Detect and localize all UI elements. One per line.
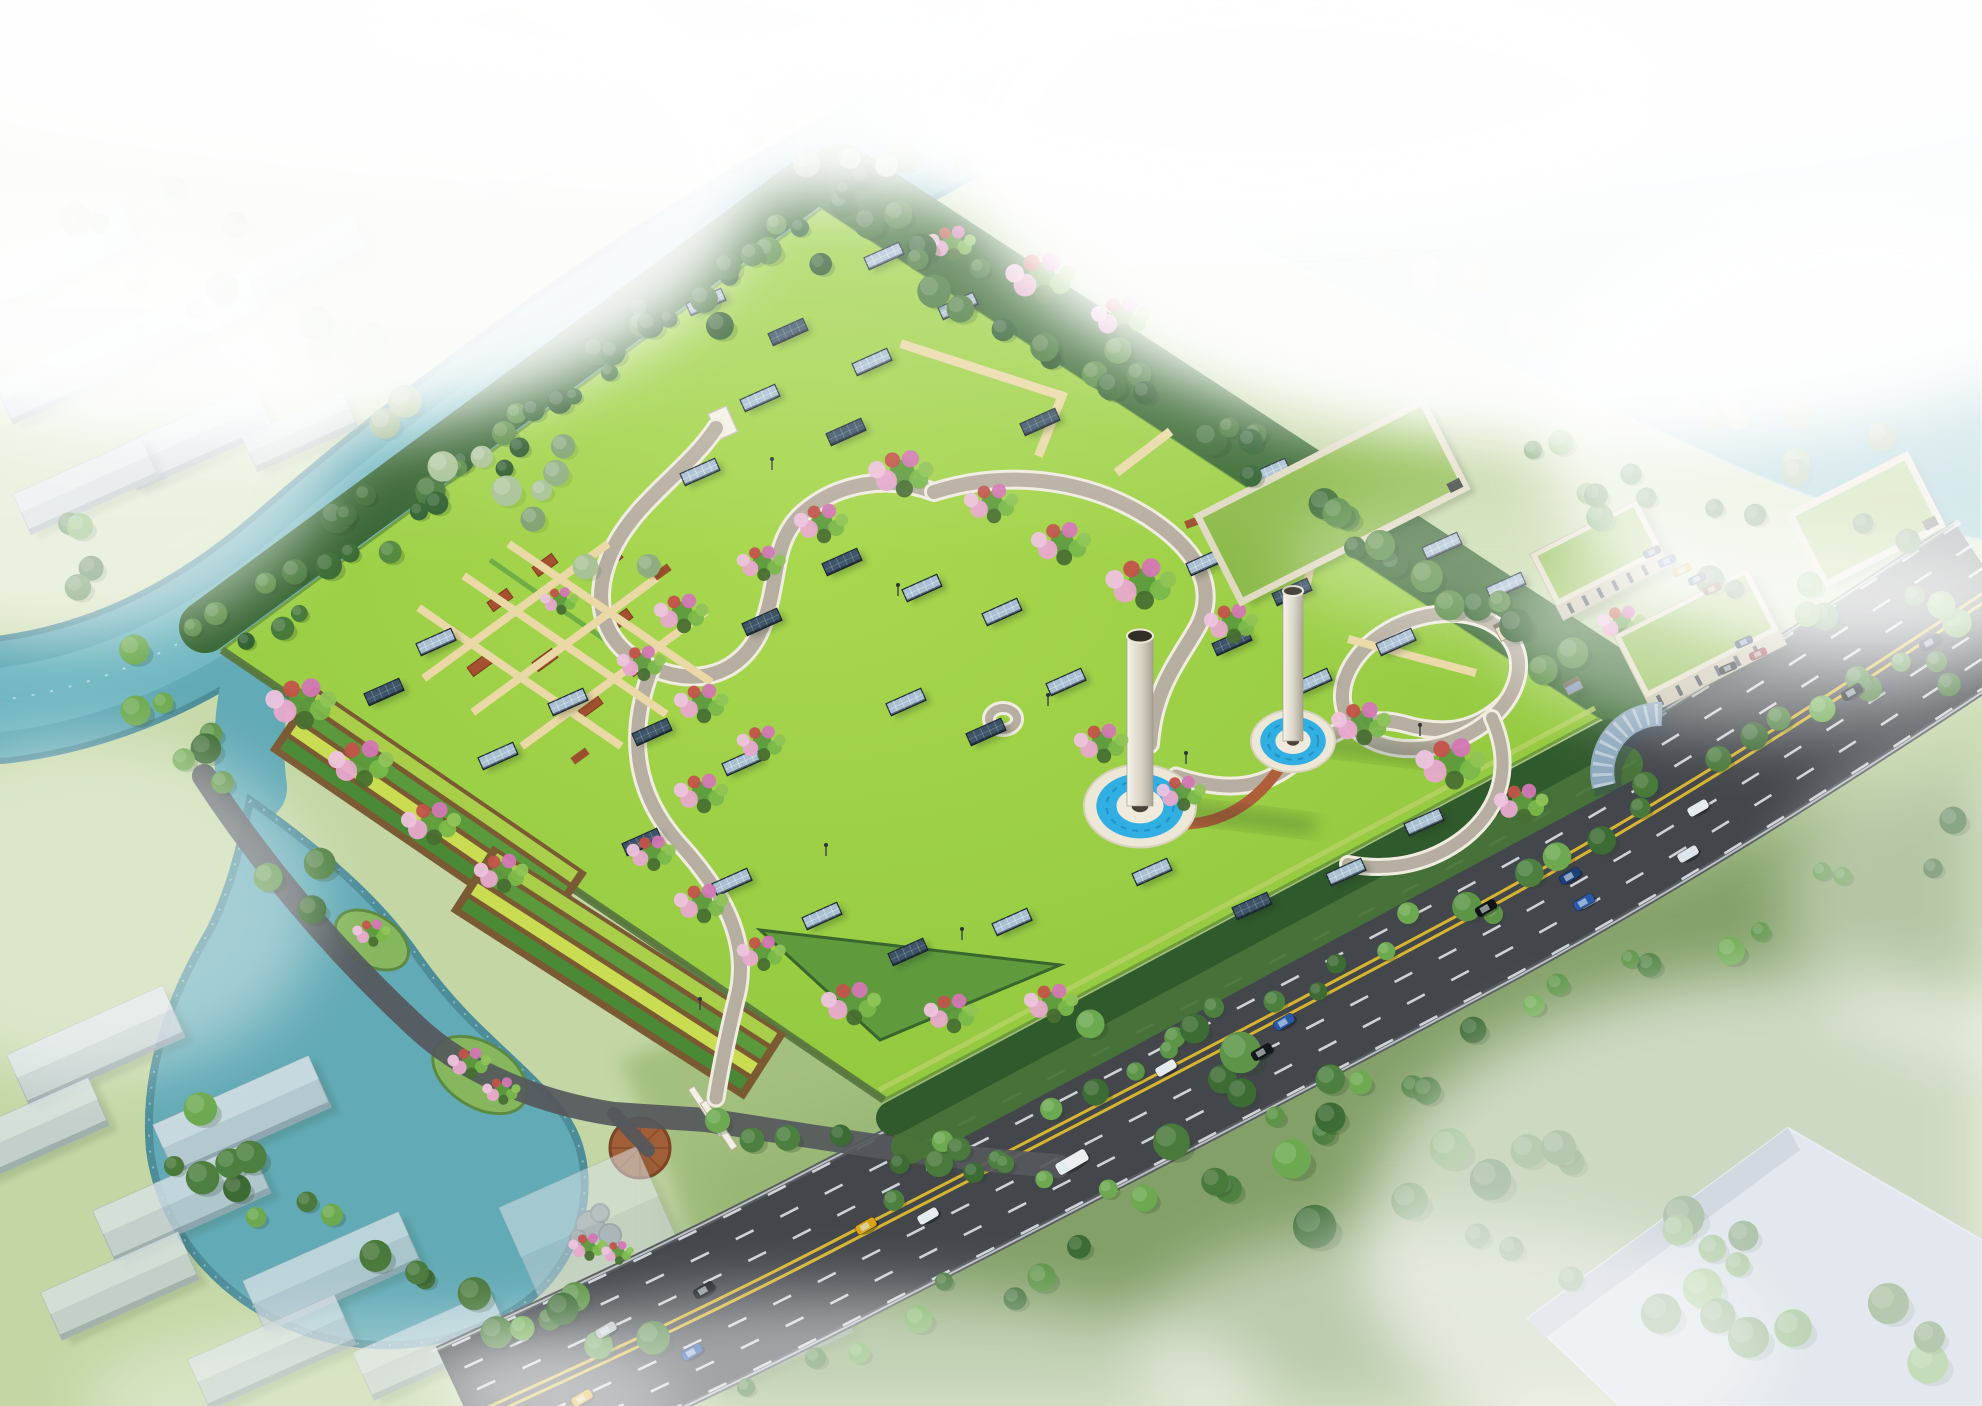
fog-cloud (1280, 490, 1720, 630)
fog-layer (0, 0, 1982, 1406)
render-canvas (0, 0, 1982, 1406)
aerial-site-render (0, 0, 1982, 1406)
